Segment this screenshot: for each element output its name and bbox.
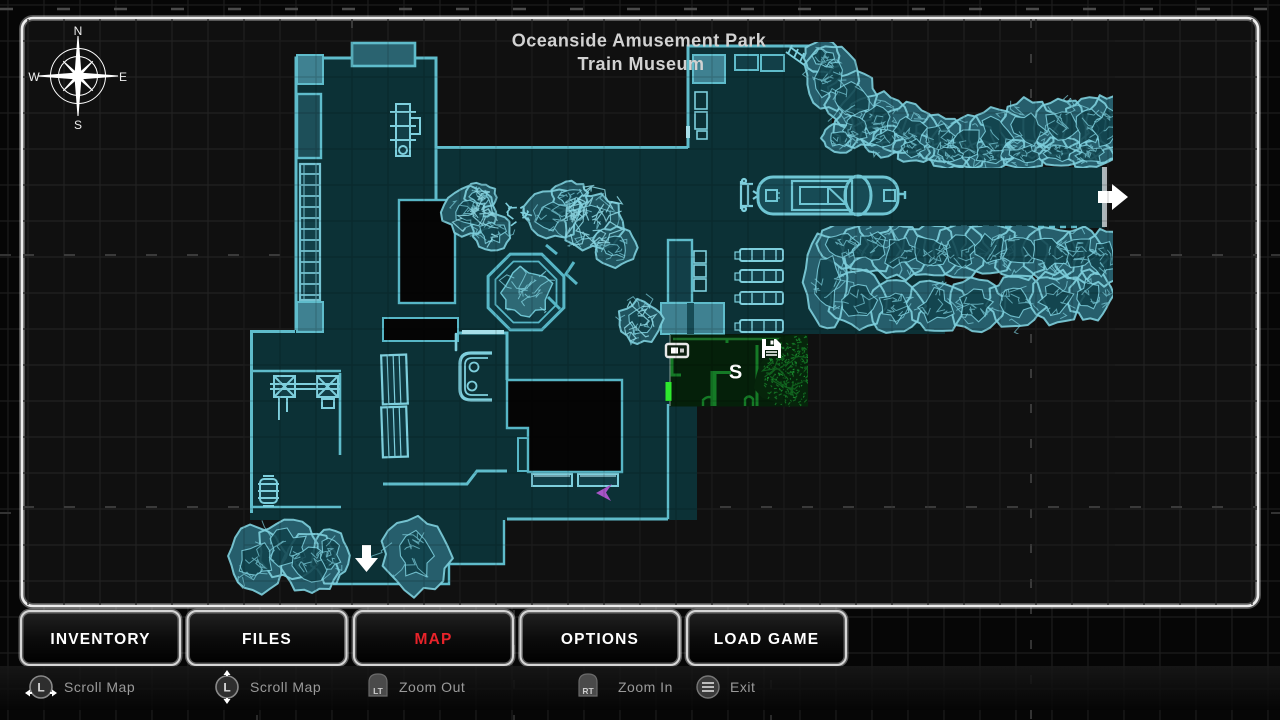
svg-text:L: L: [223, 681, 230, 695]
svg-text:LT: LT: [373, 686, 384, 696]
svg-text:FILES: FILES: [242, 631, 292, 648]
svg-text:Train Museum: Train Museum: [577, 54, 704, 74]
svg-text:INVENTORY: INVENTORY: [50, 631, 150, 648]
svg-text:Exit: Exit: [730, 679, 755, 695]
svg-text:E: E: [119, 70, 127, 84]
svg-text:Scroll Map: Scroll Map: [64, 679, 135, 695]
svg-text:N: N: [74, 24, 83, 38]
svg-text:S: S: [74, 118, 82, 132]
svg-text:L: L: [37, 681, 44, 695]
svg-text:RT: RT: [582, 686, 594, 696]
svg-text:Oceanside Amusement Park: Oceanside Amusement Park: [512, 31, 767, 51]
svg-text:MAP: MAP: [414, 631, 452, 648]
svg-text:OPTIONS: OPTIONS: [561, 631, 639, 648]
svg-text:Zoom In: Zoom In: [618, 679, 673, 695]
svg-text:W: W: [28, 70, 40, 84]
svg-text:LOAD GAME: LOAD GAME: [714, 631, 820, 648]
svg-text:Scroll Map: Scroll Map: [250, 679, 321, 695]
svg-text:Zoom Out: Zoom Out: [399, 679, 465, 695]
